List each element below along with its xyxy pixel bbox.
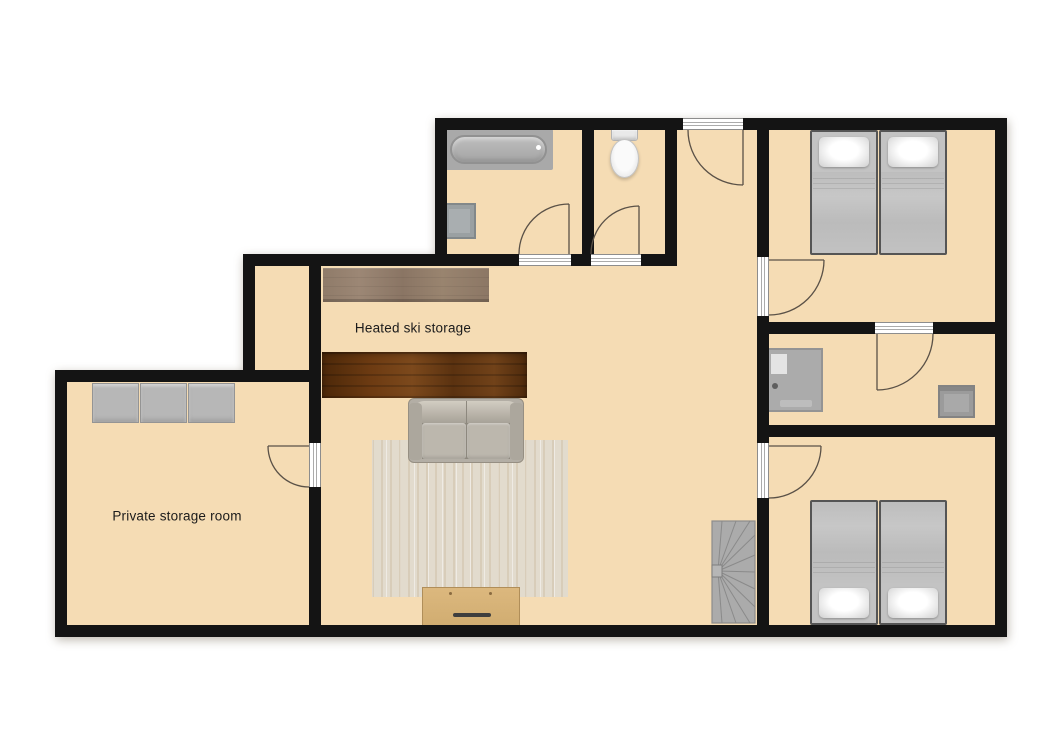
wc-door-swing	[591, 206, 639, 254]
room-label-ski-storage: Heated ski storage	[355, 321, 471, 336]
entrance-door-swing	[688, 130, 743, 185]
room-label-private-storage: Private storage room	[112, 509, 241, 524]
bedroom-north-door-swing	[769, 260, 824, 315]
floor-plan: Heated ski storage Private storage room	[0, 0, 1049, 749]
stairs-and-door-swing-overlay	[0, 0, 1049, 749]
shower-room-door-swing	[877, 334, 933, 390]
bathroom-door-swing	[519, 204, 569, 254]
floor-plan-canvas: Heated ski storage Private storage room	[0, 0, 1049, 749]
private-storage-door-swing	[268, 446, 309, 487]
winder-staircase	[712, 521, 755, 623]
staircase-newel	[712, 565, 722, 577]
bedroom-south-door-swing	[769, 446, 821, 498]
